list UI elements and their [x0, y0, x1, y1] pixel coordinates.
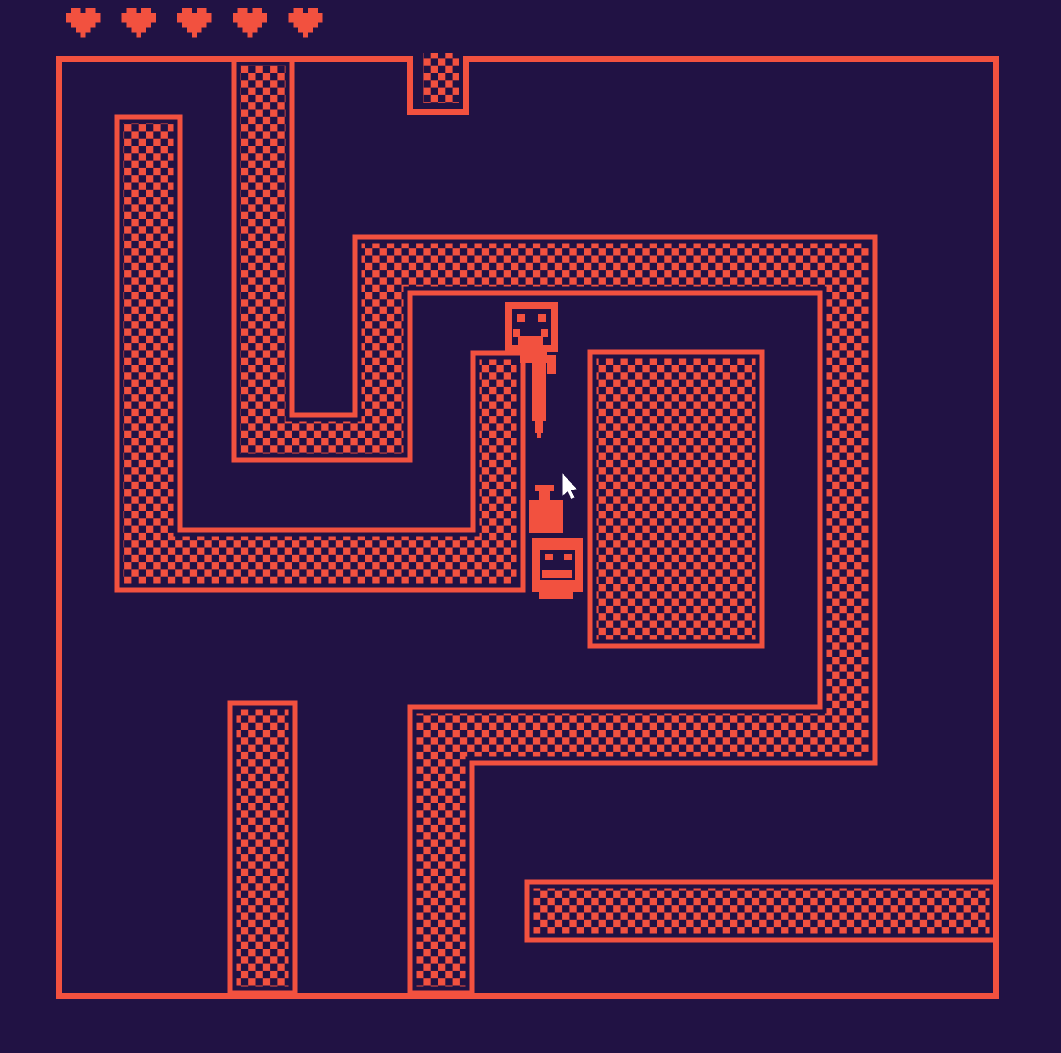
smiley-face-avatar[interactable]: [505, 302, 558, 352]
doorway-tile: [423, 53, 459, 103]
maze-wall-center-block: [590, 352, 762, 646]
maze-wall-bottom-right-band: [527, 882, 996, 940]
game-screen: [0, 0, 1061, 1053]
game-canvas[interactable]: [0, 0, 1061, 1053]
maze-wall-bottom-left-column: [230, 703, 295, 993]
face-altar-statue[interactable]: [532, 538, 583, 599]
